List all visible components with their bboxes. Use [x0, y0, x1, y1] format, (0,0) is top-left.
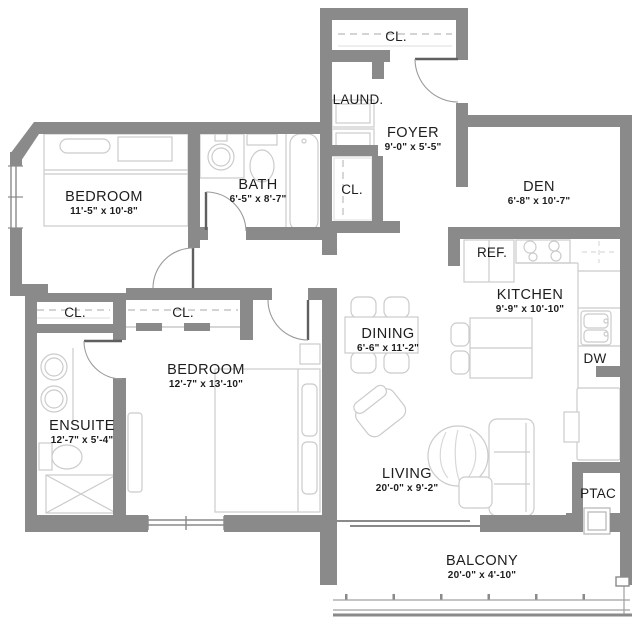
room-label-dining: DINING 6'-6" x 11'-2" — [357, 326, 419, 354]
room-name: REF. — [477, 245, 507, 261]
room-name: DEN — [508, 179, 571, 196]
room-label-den: DEN 6'-8" x 10'-7" — [508, 179, 571, 207]
ensuite-toilet — [39, 443, 82, 470]
tv-console — [564, 388, 620, 460]
room-name: LIVING — [376, 466, 439, 483]
room-label-closet-entry: CL. — [385, 29, 407, 45]
room-dims: 20'-0" x 4'-10" — [446, 570, 518, 582]
room-label-ptac: PTAC — [580, 486, 616, 502]
room-name: DINING — [357, 326, 419, 343]
room-dims: 12'-7" x 5'-4" — [49, 435, 115, 447]
room-label-closet-hall: CL. — [64, 305, 86, 321]
armchair — [348, 381, 409, 441]
room-label-bedroom-2: BEDROOM 12'-7" x 13'-10" — [167, 362, 245, 390]
room-dims: 6'-5" x 8'-7" — [230, 194, 287, 206]
room-name: CL. — [341, 182, 363, 198]
room-label-dishwasher: DW — [584, 351, 607, 367]
room-dims: 9'-0" x 5'-5" — [385, 142, 442, 154]
room-name: BALCONY — [446, 553, 518, 570]
room-name: CL. — [64, 305, 86, 321]
room-label-bath: BATH 6'-5" x 8'-7" — [230, 177, 287, 205]
room-label-ensuite: ENSUITE 12'-7" x 5'-4" — [49, 418, 115, 446]
bedroom-1-door — [153, 248, 193, 288]
room-name: BEDROOM — [167, 362, 245, 379]
room-name: BEDROOM — [65, 189, 143, 206]
room-label-living: LIVING 20'-0" x 9'-2" — [376, 466, 439, 494]
room-label-laundry: LAUND. — [333, 92, 384, 108]
floor-plan: BEDROOM 11'-5" x 10'-8" BATH 6'-5" x 8'-… — [0, 0, 639, 626]
room-dims: 6'-6" x 11'-2" — [357, 343, 419, 355]
bath-tub — [286, 130, 322, 236]
room-dims: 9'-9" x 10'-10" — [496, 304, 564, 316]
room-name: KITCHEN — [496, 287, 564, 304]
kitchen-island — [451, 318, 532, 378]
bath-toilet — [247, 134, 277, 182]
room-dims: 20'-0" x 9'-2" — [376, 483, 439, 495]
kitchen-sink — [581, 311, 611, 345]
bath-sink — [200, 134, 244, 178]
room-label-foyer: FOYER 9'-0" x 5'-5" — [385, 125, 442, 153]
room-label-balcony: BALCONY 20'-0" x 4'-10" — [446, 553, 518, 581]
room-name: BATH — [230, 177, 287, 194]
shower — [46, 475, 116, 513]
room-label-bedroom-1: BEDROOM 11'-5" x 10'-8" — [65, 189, 143, 217]
room-label-kitchen: KITCHEN 9'-9" x 10'-10" — [496, 287, 564, 315]
balcony-railing — [333, 577, 632, 615]
room-name: FOYER — [385, 125, 442, 142]
room-name: ENSUITE — [49, 418, 115, 435]
room-label-fridge: REF. — [477, 245, 507, 261]
ptac-unit — [584, 508, 610, 534]
room-label-closet-foyer: CL. — [341, 182, 363, 198]
room-dims: 12'-7" x 13'-10" — [167, 379, 245, 391]
room-name: CL. — [385, 29, 407, 45]
entry-door — [415, 59, 458, 102]
room-name: LAUND. — [333, 92, 384, 108]
room-name: CL. — [172, 305, 194, 321]
sliding-door-balcony — [337, 516, 480, 531]
stove — [516, 240, 570, 263]
room-name: PTAC — [580, 486, 616, 502]
bedroom-2-door — [268, 300, 308, 340]
ensuite-door — [84, 341, 122, 379]
room-name: DW — [584, 351, 607, 367]
window-bedroom-2 — [148, 516, 224, 531]
window-bedroom-1 — [8, 166, 23, 228]
room-label-closet-bedroom2: CL. — [172, 305, 194, 321]
room-dims: 11'-5" x 10'-8" — [65, 206, 143, 218]
ensuite-vanity — [41, 348, 73, 424]
room-dims: 6'-8" x 10'-7" — [508, 196, 571, 208]
